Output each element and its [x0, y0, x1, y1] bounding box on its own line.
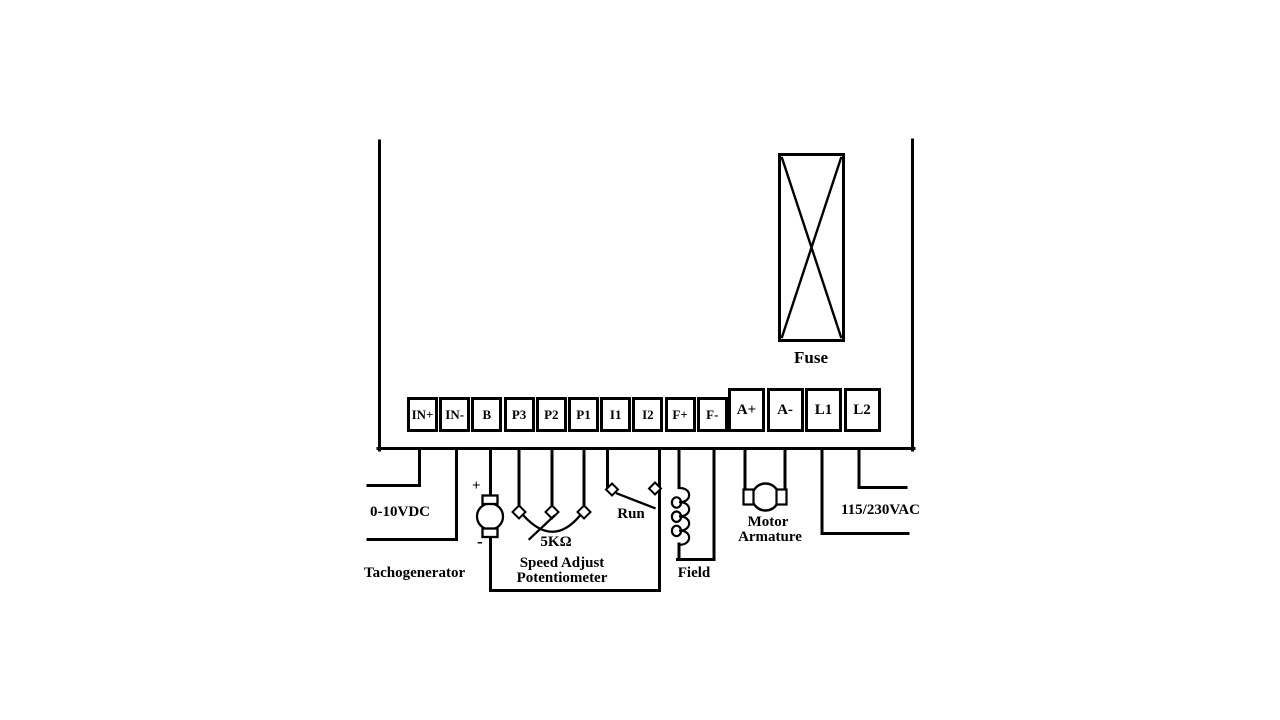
tachogenerator-label: Tachogenerator: [364, 566, 465, 582]
field-coil-icon: [672, 488, 689, 545]
pot-value-label: 5KΩ: [520, 535, 592, 551]
run-switch-icon: [606, 483, 661, 509]
line-voltage-label: 115/230VAC: [841, 503, 920, 519]
wires-potentiometer: [519, 450, 584, 506]
terminal-f-plus: F+: [665, 397, 696, 432]
tach-plus-label: +: [472, 479, 481, 495]
terminal-l1: L1: [805, 388, 842, 432]
tach-minus-label: -: [477, 533, 483, 551]
terminal-p2: P2: [536, 397, 567, 432]
fuse-label: Fuse: [778, 349, 844, 367]
terminal-in-minus: IN-: [439, 397, 470, 432]
fuse-icon: [780, 155, 844, 341]
terminal-i1: I1: [600, 397, 631, 432]
terminal-b: B: [471, 397, 502, 432]
input-voltage-label: 0-10VDC: [370, 505, 430, 521]
wire-in-minus: [368, 450, 457, 540]
run-switch-label: Run: [610, 507, 652, 523]
wire-field-minus: [678, 450, 715, 560]
motor-label-line2: Armature: [733, 530, 807, 546]
diagram-linework: [0, 0, 1280, 720]
tachogenerator-icon: [477, 496, 503, 538]
pot-label-line2: Potentiometer: [496, 571, 628, 587]
motor-armature-icon: [744, 484, 787, 511]
terminal-in-plus: IN+: [407, 397, 438, 432]
wire-l1: [822, 450, 908, 534]
wire-l2: [859, 450, 906, 488]
terminal-a-plus: A+: [728, 388, 765, 432]
terminal-i2: I2: [632, 397, 663, 432]
terminal-f-minus: F-: [697, 397, 728, 432]
wire-in-plus: [368, 450, 420, 486]
terminal-p3: P3: [504, 397, 535, 432]
wiring-diagram: IN+ IN- B P3 P2 P1 I1 I2 F+ F- A+ A- L1 …: [0, 0, 1280, 720]
terminal-p1: P1: [568, 397, 599, 432]
terminal-a-minus: A-: [767, 388, 804, 432]
terminal-l2: L2: [844, 388, 881, 432]
field-label: Field: [669, 566, 719, 582]
